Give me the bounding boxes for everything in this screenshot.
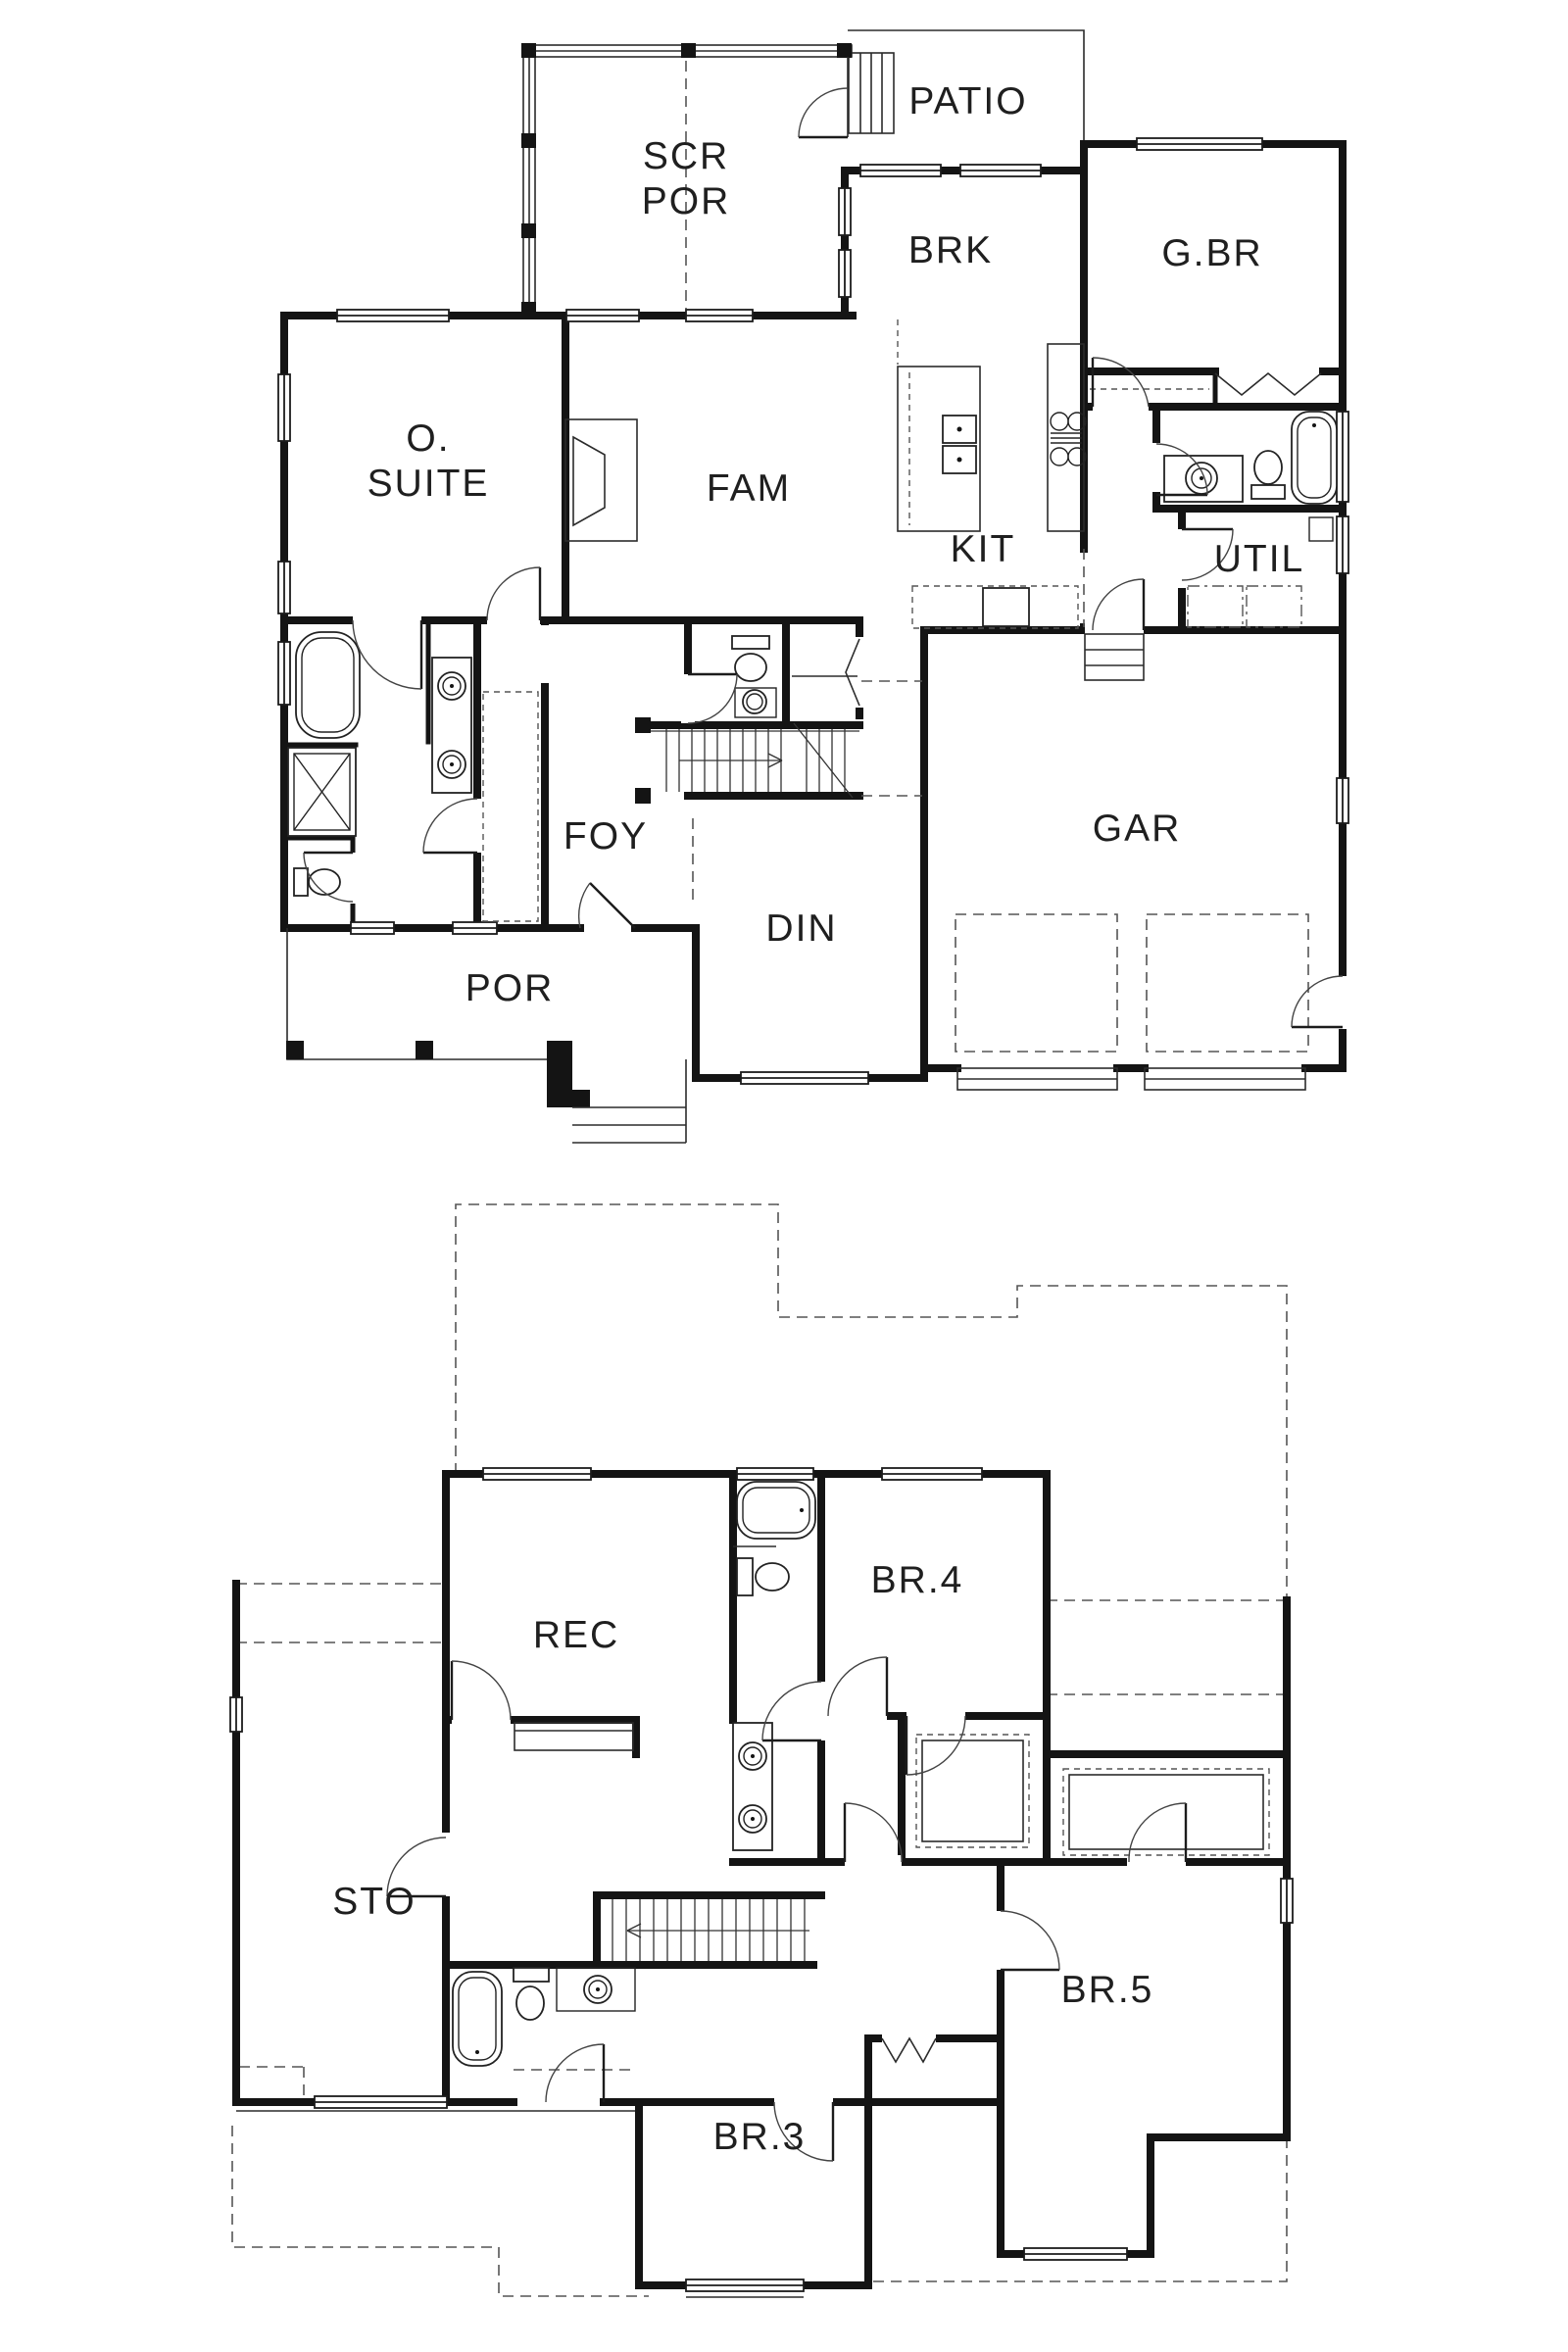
room-label-br5: BR.5 [1061,1969,1154,2011]
kitchen-fixtures [898,319,1086,628]
room-label-patio: PATIO [908,80,1027,122]
room-label-rec: REC [533,1614,619,1656]
room-label-scr: SCR [643,135,729,177]
room-label-foy: FOY [563,815,648,857]
room-label-osuite-2: SUITE [367,463,490,505]
room-label-gar: GAR [1093,808,1182,850]
room-label-osuite-1: O. [406,417,450,460]
room-label-br3: BR.3 [713,2116,807,2158]
floor-plan-drawing: SCR POR PATIO BRK G.BR O. SUITE FAM KIT … [0,0,1568,2352]
second-floor-plan: REC BR.4 STO BR.5 BR.3 [230,1204,1293,2297]
first-floor-plan: SCR POR PATIO BRK G.BR O. SUITE FAM KIT … [278,30,1349,1143]
room-label-brk: BRK [908,229,993,271]
room-label-fam: FAM [707,467,791,510]
garage-side-door-opening [1336,976,1349,1029]
second-floor-doors [387,1657,1186,2161]
fireplace-niche [565,419,637,541]
owner-bath-fixtures [288,632,538,921]
room-label-kit: KIT [951,528,1016,570]
room-label-br4: BR.4 [871,1559,964,1601]
stairs-first-floor [635,717,859,804]
room-label-din: DIN [765,907,837,950]
second-floor-walls [236,1474,1287,2285]
floor-plan-page: SCR POR PATIO BRK G.BR O. SUITE FAM KIT … [0,0,1568,2352]
garage-interior [955,634,1308,1090]
bath3-fixtures [453,1968,635,2066]
room-label-sto: STO [332,1881,416,1923]
stairs-second-floor [612,1899,809,1961]
powder-room-fixtures [732,636,857,717]
room-label-por-screen: POR [642,180,731,222]
room-label-util: UTIL [1214,538,1305,580]
room-label-gbr: G.BR [1161,232,1262,274]
room-label-por: POR [465,967,555,1009]
hall-bath-fixtures [733,1482,815,1850]
rec-bench [514,1723,633,1750]
porch [286,928,686,1143]
